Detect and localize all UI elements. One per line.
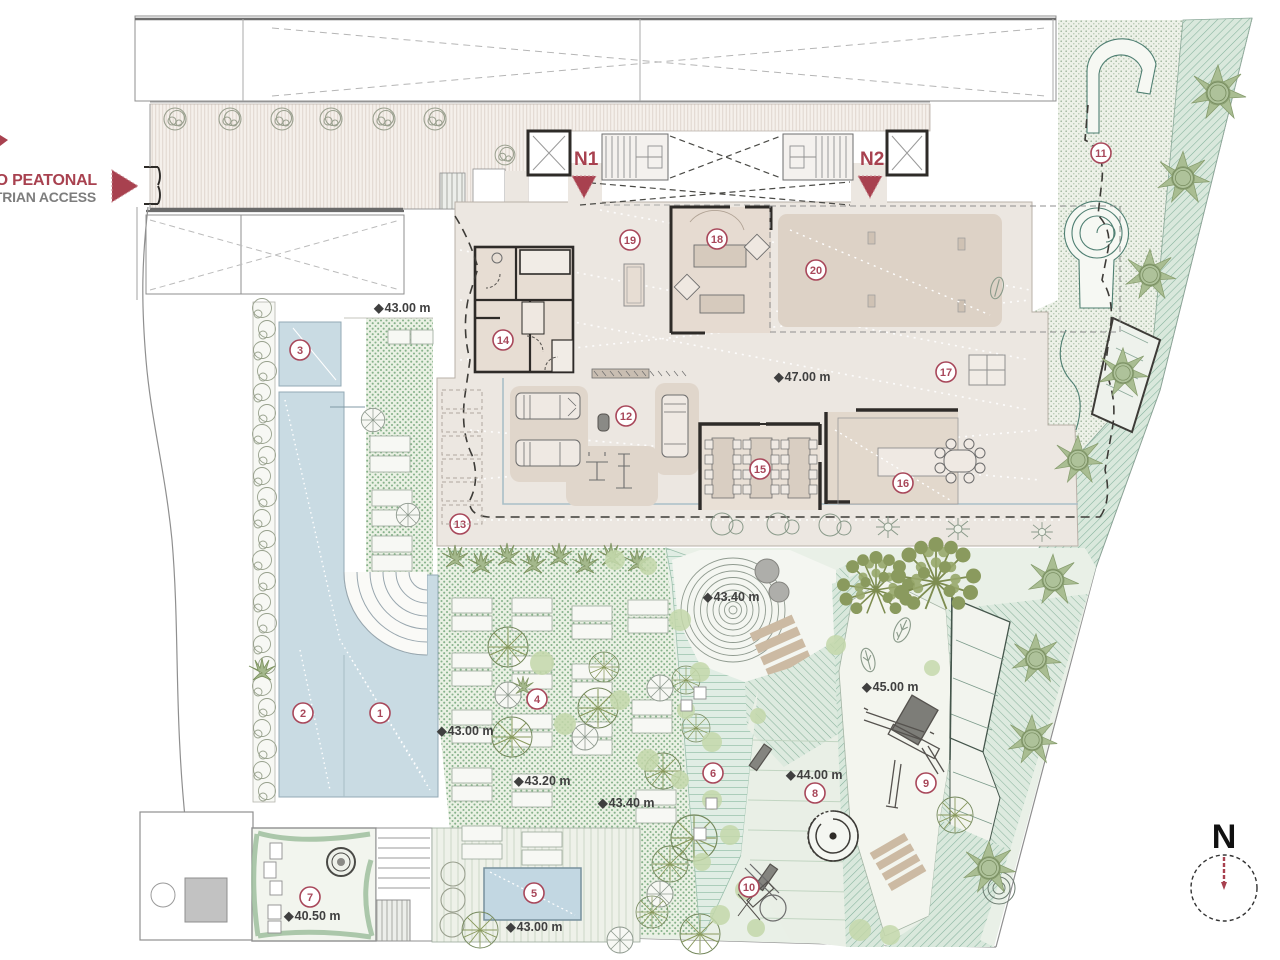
svg-text:2: 2 <box>300 708 306 720</box>
svg-text:◆43.40 m: ◆43.40 m <box>702 590 760 604</box>
svg-text:◆43.20 m: ◆43.20 m <box>513 774 571 788</box>
svg-text:11: 11 <box>1095 148 1107 160</box>
svg-text:7: 7 <box>307 892 313 904</box>
svg-text:N: N <box>1212 818 1237 856</box>
svg-text:◆43.00 m: ◆43.00 m <box>436 724 494 738</box>
svg-text:15: 15 <box>754 464 766 476</box>
svg-text:◆47.00 m: ◆47.00 m <box>773 370 831 384</box>
svg-text:1: 1 <box>377 708 383 720</box>
svg-text:◆43.00 m: ◆43.00 m <box>505 920 563 934</box>
svg-text:10: 10 <box>743 882 755 894</box>
svg-text:16: 16 <box>897 478 909 490</box>
svg-text:◆43.40 m: ◆43.40 m <box>597 796 655 810</box>
svg-text:8: 8 <box>812 788 818 800</box>
svg-text:6: 6 <box>710 768 716 780</box>
svg-text:9: 9 <box>923 778 929 790</box>
svg-text:14: 14 <box>497 335 510 347</box>
svg-text:N1: N1 <box>574 149 599 170</box>
svg-text:20: 20 <box>810 265 822 277</box>
svg-text:◆44.00 m: ◆44.00 m <box>785 768 843 782</box>
svg-text:4: 4 <box>534 694 541 706</box>
svg-text:TRIAN ACCESS: TRIAN ACCESS <box>0 189 96 205</box>
svg-text:O PEATONAL: O PEATONAL <box>0 172 97 189</box>
svg-text:5: 5 <box>531 888 537 900</box>
svg-text:18: 18 <box>711 234 723 246</box>
svg-text:◆43.00 m: ◆43.00 m <box>373 301 431 315</box>
svg-text:19: 19 <box>624 235 636 247</box>
svg-text:N2: N2 <box>860 149 884 170</box>
svg-text:12: 12 <box>620 411 632 423</box>
svg-text:13: 13 <box>454 519 466 531</box>
svg-text:3: 3 <box>297 345 303 357</box>
svg-text:◆45.00 m: ◆45.00 m <box>861 680 919 694</box>
svg-text:◆40.50 m: ◆40.50 m <box>283 909 341 923</box>
svg-text:17: 17 <box>940 367 952 379</box>
